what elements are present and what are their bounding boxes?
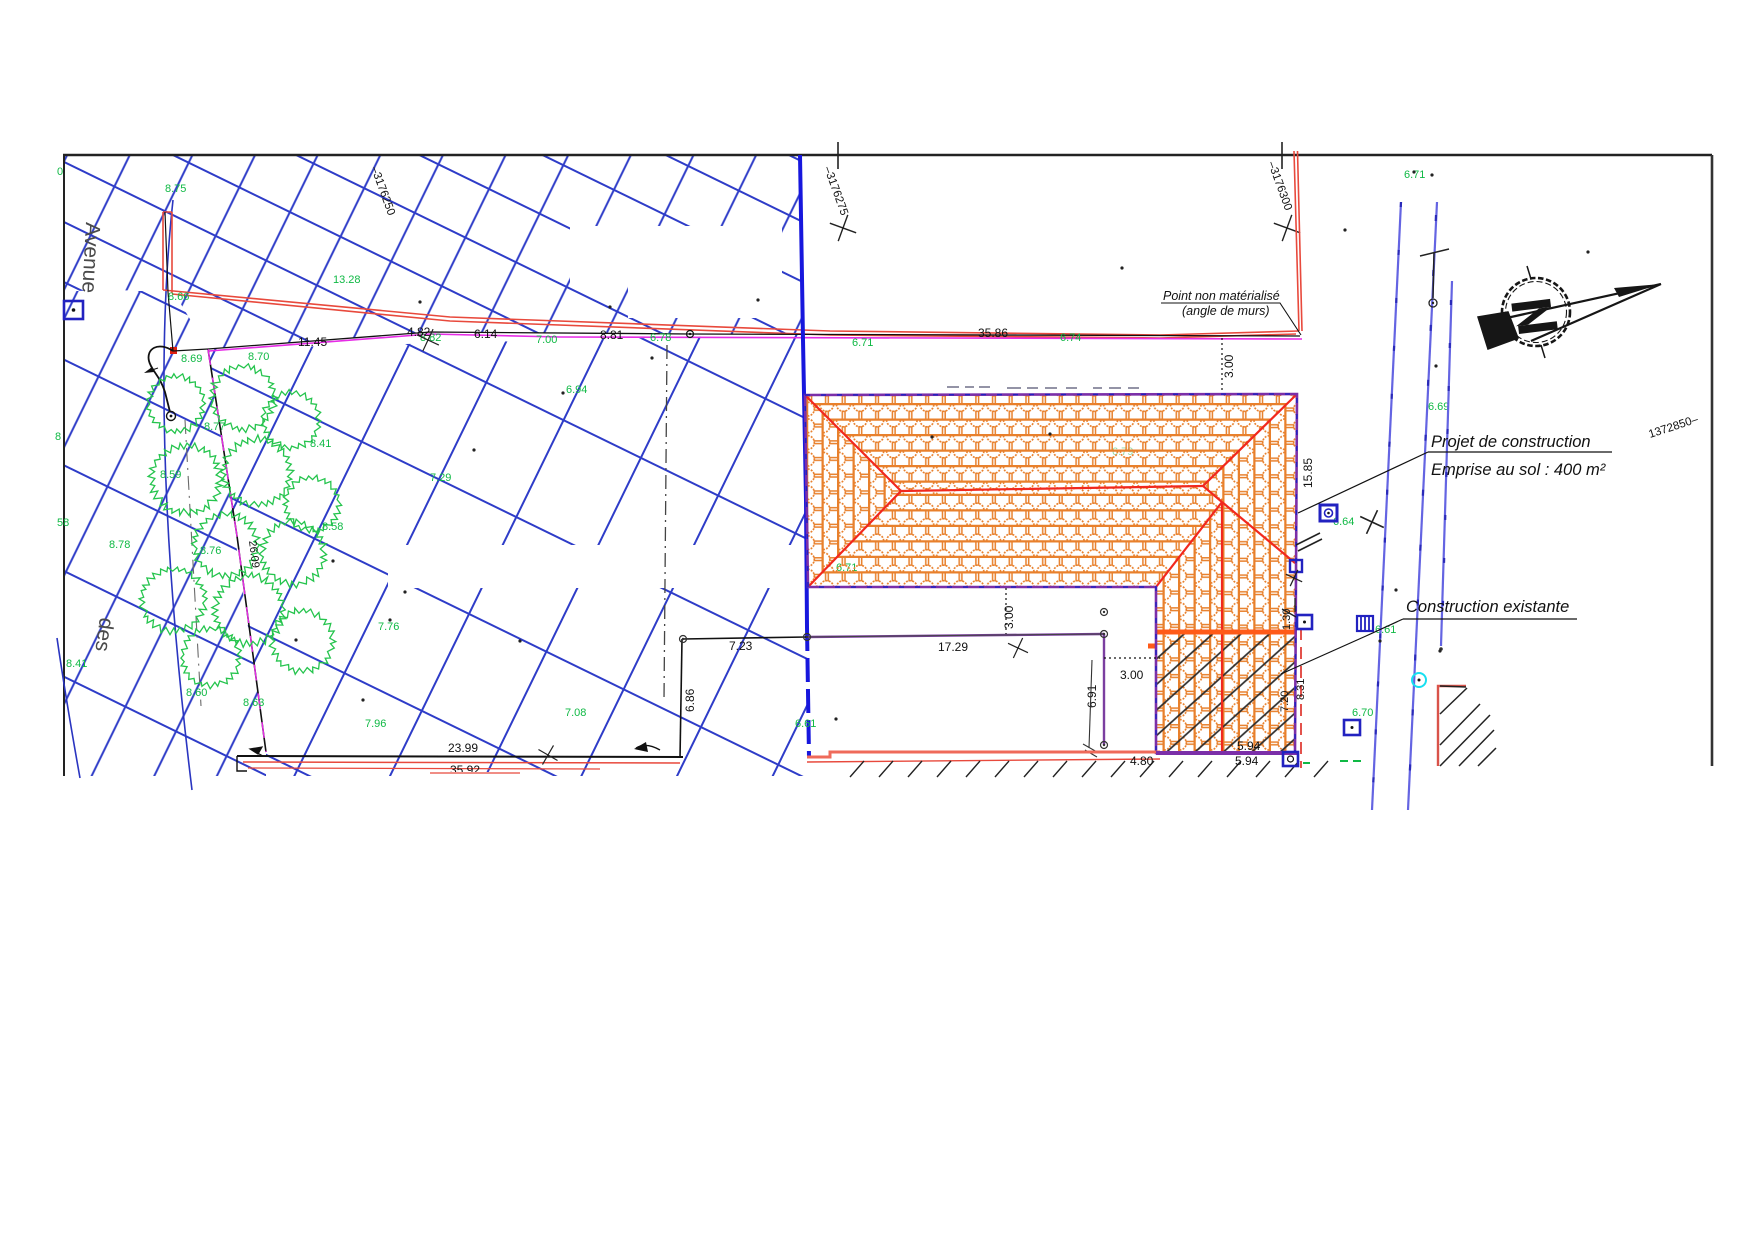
svg-text:8.78: 8.78 [109, 539, 130, 551]
svg-text:(angle de murs): (angle de murs) [1182, 304, 1270, 318]
svg-text:Construction existante: Construction existante [1406, 598, 1569, 616]
svg-text:Projet de construction: Projet de construction [1431, 433, 1591, 451]
svg-text:8.81: 8.81 [600, 328, 624, 342]
svg-text:8: 8 [55, 431, 61, 443]
svg-text:6.70: 6.70 [1352, 707, 1373, 719]
svg-text:3.00: 3.00 [1222, 354, 1236, 378]
svg-text:des: des [90, 616, 117, 653]
svg-text:23.99: 23.99 [448, 741, 478, 755]
svg-text:7.08: 7.08 [565, 707, 586, 719]
svg-text:Emprise au sol : 400 m²: Emprise au sol : 400 m² [1431, 461, 1606, 479]
svg-text:13.28: 13.28 [333, 274, 361, 286]
svg-text:8.66: 8.66 [168, 291, 189, 303]
svg-text:5.94: 5.94 [1235, 754, 1259, 768]
svg-text:58: 58 [57, 517, 69, 529]
svg-text:5.94: 5.94 [1237, 739, 1261, 753]
svg-text:6.69: 6.69 [1428, 401, 1449, 413]
svg-text:8.70: 8.70 [248, 351, 269, 363]
svg-text:8.77: 8.77 [204, 421, 225, 433]
svg-text:6.78: 6.78 [650, 332, 671, 344]
svg-text:15.85: 15.85 [1301, 458, 1315, 488]
svg-text:7.23: 7.23 [729, 639, 753, 653]
svg-text:11.45: 11.45 [298, 335, 327, 349]
svg-text:6.61: 6.61 [795, 718, 816, 730]
svg-text:6.91: 6.91 [1085, 684, 1099, 708]
svg-text:8.60: 8.60 [186, 687, 207, 699]
svg-text:0: 0 [57, 166, 63, 178]
svg-text:8.41: 8.41 [310, 438, 331, 450]
svg-text:3.00: 3.00 [1002, 605, 1016, 629]
svg-text:7.29: 7.29 [430, 472, 451, 484]
svg-text:8.75: 8.75 [165, 183, 186, 195]
svg-text:6.86: 6.86 [683, 688, 697, 712]
svg-text:8.69: 8.69 [181, 353, 202, 365]
svg-text:Point non matérialisé: Point non matérialisé [1163, 289, 1280, 303]
svg-text:8.76: 8.76 [200, 545, 221, 557]
svg-text:Avenue: Avenue [77, 222, 104, 294]
svg-text:7.96: 7.96 [365, 718, 386, 730]
svg-text:8.31: 8.31 [1295, 679, 1307, 700]
svg-text:6.14: 6.14 [474, 327, 498, 341]
svg-text:3.00: 3.00 [1120, 668, 1144, 682]
svg-text:7.00: 7.00 [536, 334, 557, 346]
svg-text:7.76: 7.76 [378, 621, 399, 633]
svg-text:4.82: 4.82 [407, 325, 431, 339]
svg-text:7.20: 7.20 [1279, 691, 1291, 712]
svg-text:6.94: 6.94 [566, 384, 587, 396]
svg-text:6.74: 6.74 [1060, 332, 1081, 344]
svg-text:8.63: 8.63 [243, 697, 264, 709]
svg-text:4.80: 4.80 [1130, 754, 1154, 768]
svg-text:8.58: 8.58 [322, 521, 343, 533]
svg-text:8.41: 8.41 [66, 658, 87, 670]
svg-text:6.71: 6.71 [852, 337, 873, 349]
svg-text:35.86: 35.86 [978, 326, 1008, 340]
svg-text:17.29: 17.29 [938, 640, 968, 654]
svg-text:8.59: 8.59 [160, 469, 181, 481]
